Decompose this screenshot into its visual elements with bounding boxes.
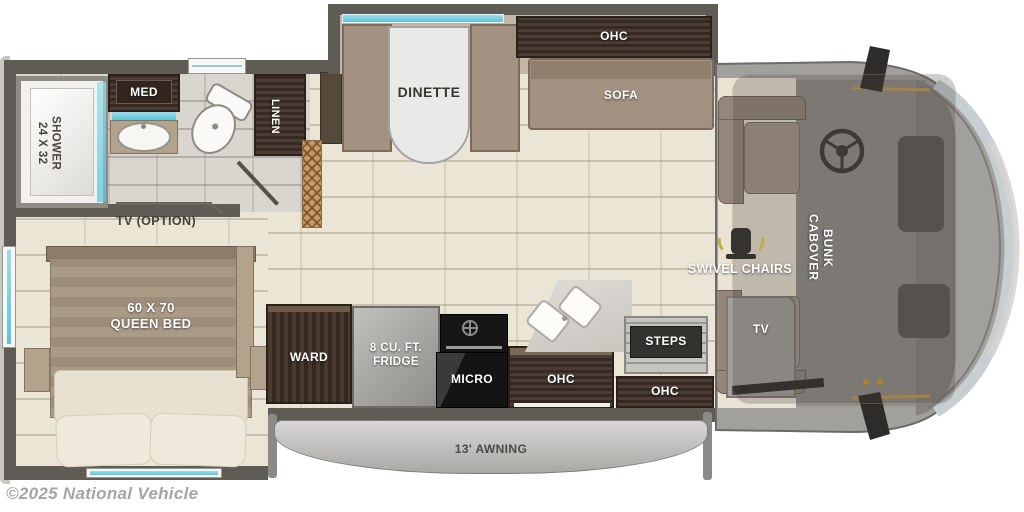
dinette-window [342,14,504,23]
fridge-label: 8 CU. FT. FRIDGE [352,342,440,370]
icon-seat [731,228,751,254]
bath-window-glass [192,65,242,67]
cooktop-grate [446,346,502,349]
icon-base [726,254,756,259]
dinette-bench-right [470,24,520,152]
micro-label: MICRO [436,372,508,386]
tv-option-bracket [116,202,212,205]
bedroom-side-window-glass [7,250,11,344]
dinette-bench-left [342,24,392,152]
bedroom-rear-window-glass [90,471,218,475]
kitchen-ohc-label: OHC [508,372,614,386]
cooktop-burner-cross2 [464,327,476,329]
shower-label: 24 X 32 SHOWER [34,100,90,186]
ward-label: WARD [266,350,352,364]
kitchen-counter-edge [514,403,610,407]
vanity-backsplash [112,112,176,120]
sink-faucet [562,316,567,321]
swivel-chairs-label: SWIVEL CHAIRS [664,262,816,277]
dinette-label: DINETTE [388,84,470,101]
slide-wall-left [328,4,340,74]
wall-hall-stub [320,72,342,144]
med-label: MED [116,85,172,99]
wardrobe-top-lip [268,306,350,312]
bed-pillow-left [55,412,153,467]
tv-label: TV [726,322,796,336]
rv-floorplan: DINETTE OHC SOFA 24 X 32 SHOWER MED LINE… [0,0,1024,512]
nightstand-left [24,348,50,392]
wall-top [4,60,340,74]
bed-pillow-right [149,412,247,467]
vanity-faucet [141,124,146,129]
swivel-chair-icon [724,224,758,264]
sofa-ohc-label: OHC [516,29,712,43]
sofa-back [531,61,711,79]
shower-glass [97,82,106,202]
linen-label: LINEN [268,86,292,146]
sofa-label: SOFA [528,88,714,102]
awning-label: 13' AWNING [274,442,708,456]
bunk-ladder [302,140,322,228]
tv-option-label: TV (OPTION) [98,214,214,229]
queen-bed-label: 60 X 70 QUEEN BED [50,300,252,331]
cabover-bunk-label: CABOVER BUNK [806,200,848,296]
watermark: ©2025 National Vehicle [6,484,326,504]
